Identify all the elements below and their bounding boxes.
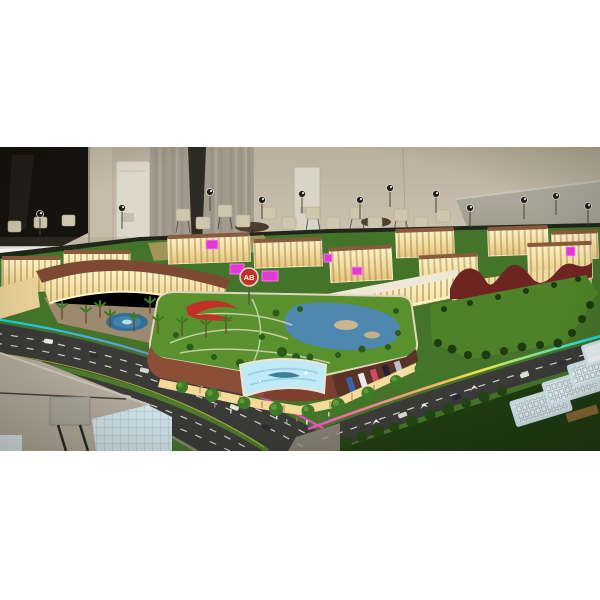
model-photograph: AB — [0, 147, 600, 451]
page: AB — [0, 0, 600, 600]
scene: AB — [0, 147, 600, 451]
photo-vignette — [0, 147, 600, 451]
